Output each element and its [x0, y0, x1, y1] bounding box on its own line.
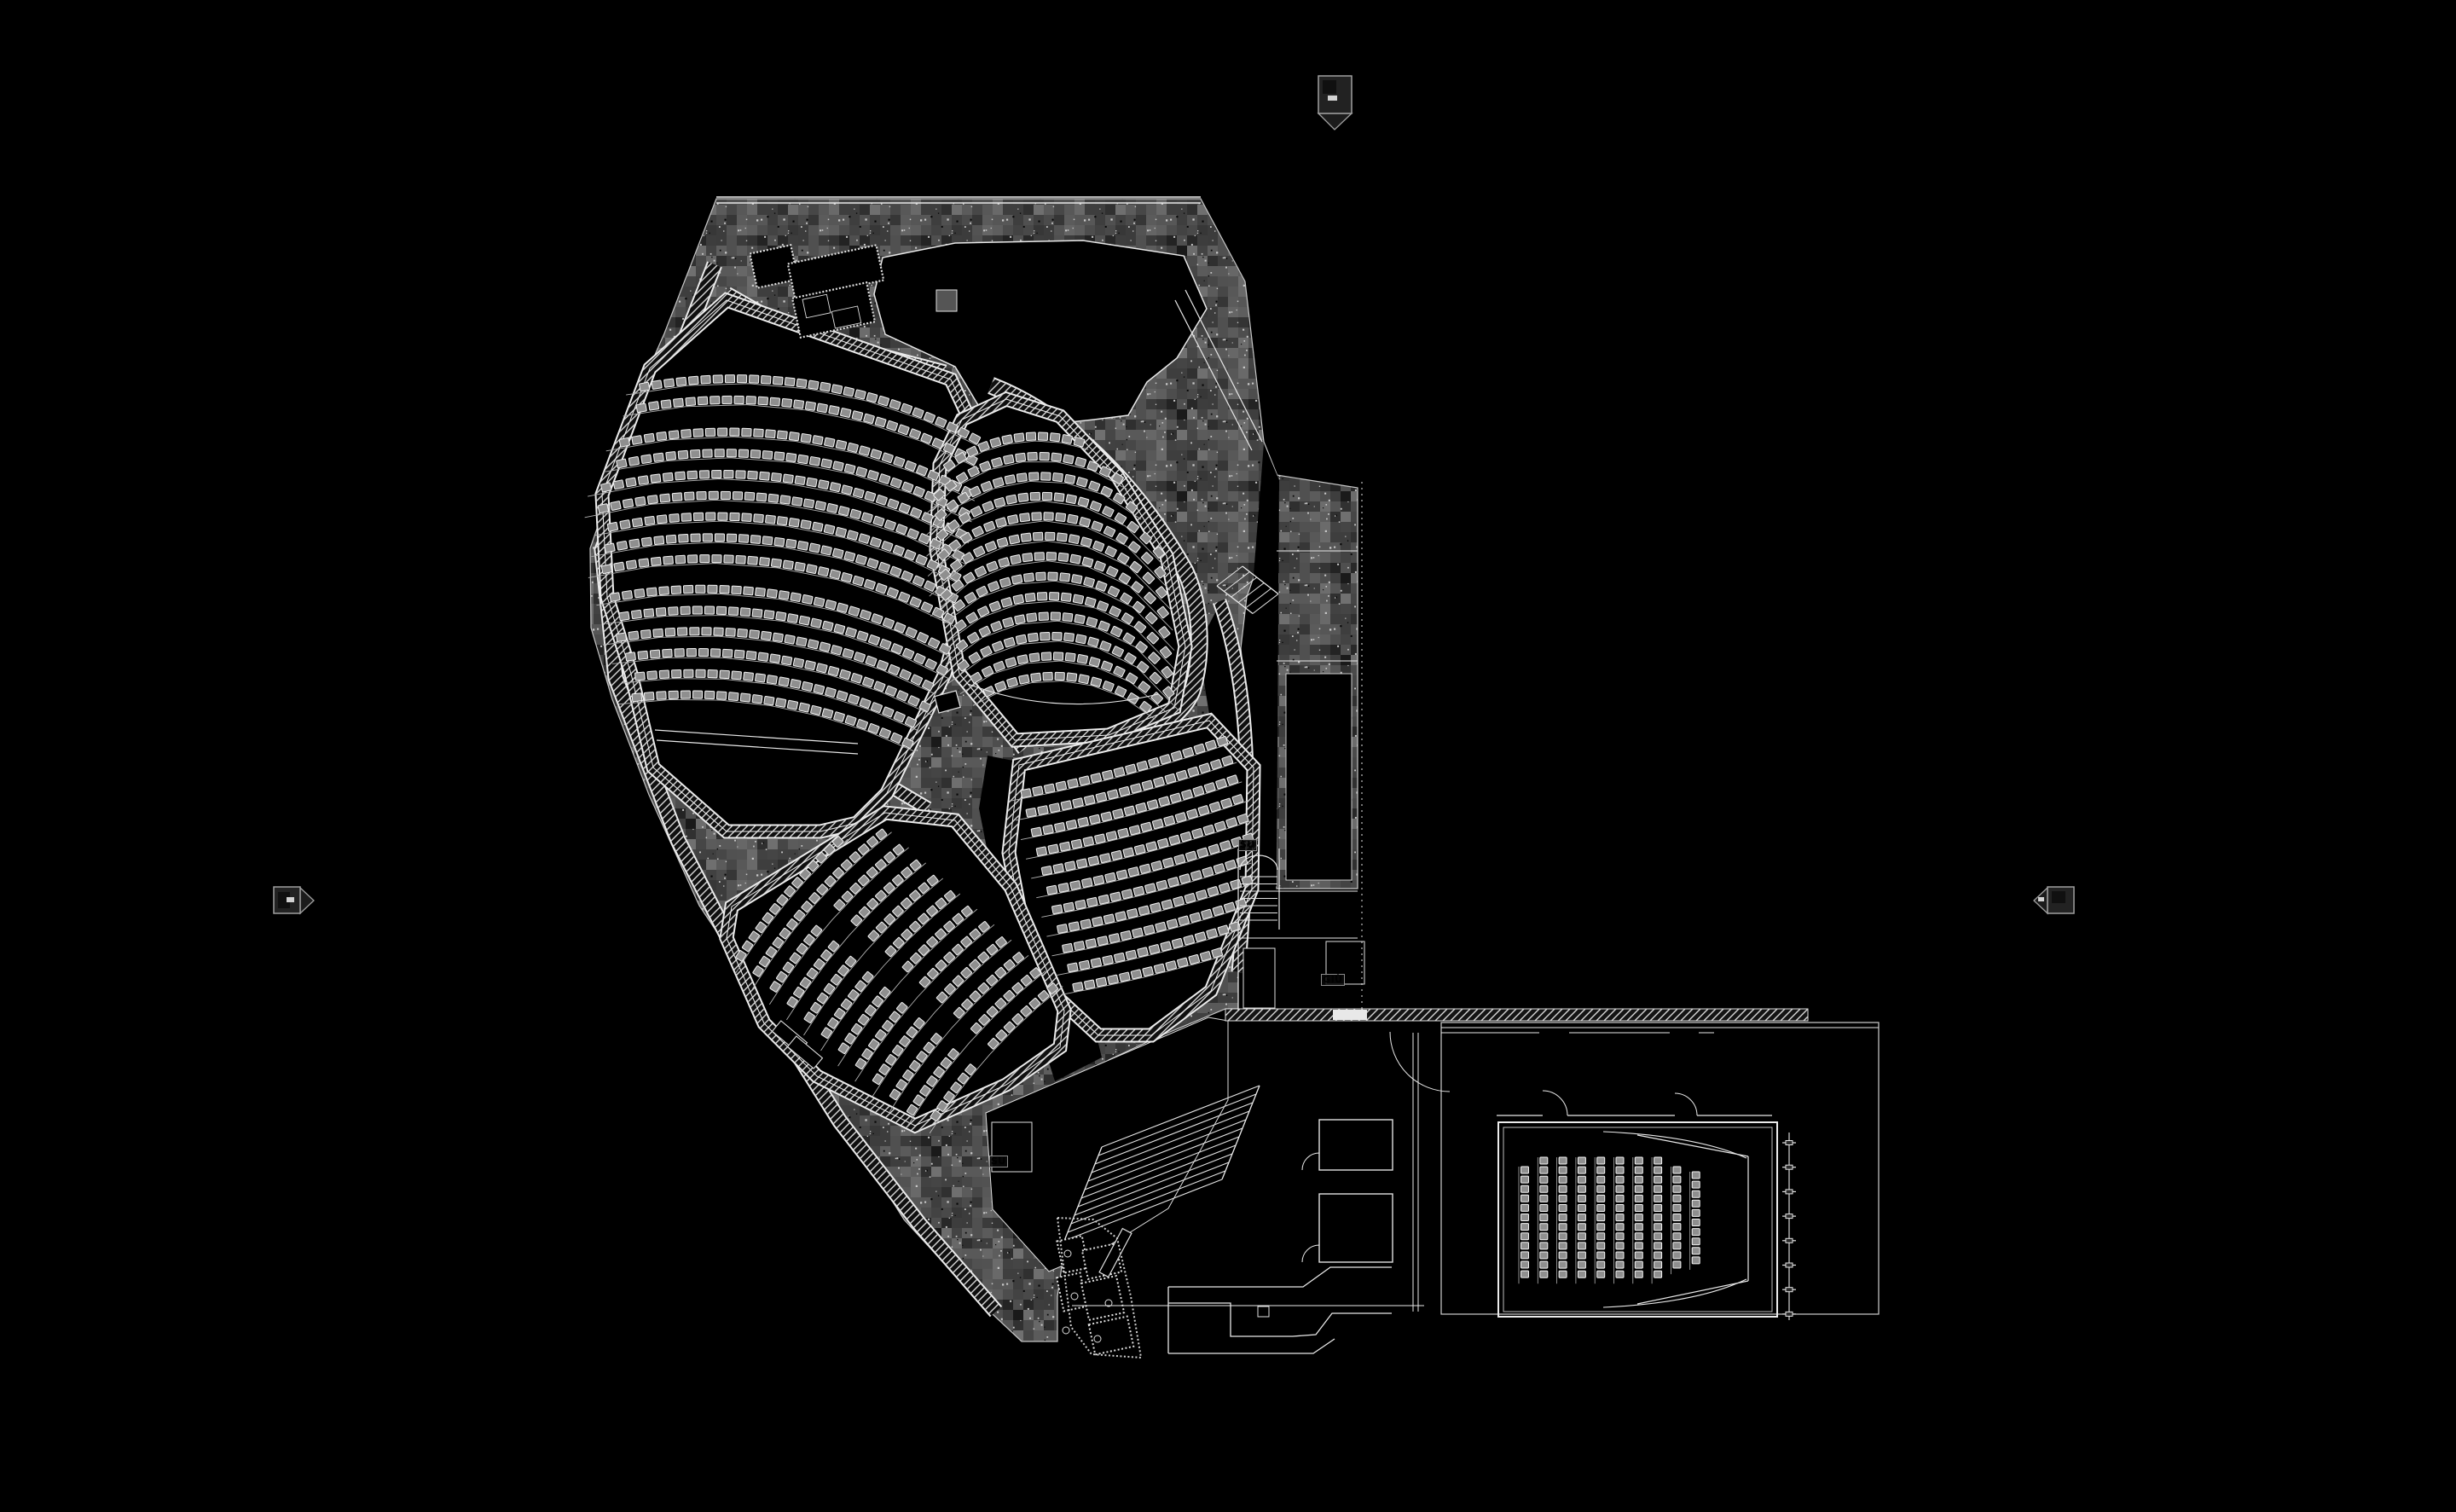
floor-plan-svg: [0, 0, 2456, 1512]
floor-plan-canvas: SU GIÙ SU: [0, 0, 2456, 1512]
section-marker-right: [2034, 887, 2074, 913]
section-marker-top: [1318, 76, 1352, 130]
section-marker-left: [274, 887, 314, 913]
stair-label-su-west: SU: [989, 1156, 1008, 1167]
stair-label-su-core: SU: [1238, 839, 1257, 851]
stair-label-giu-core: GIÙ: [1321, 974, 1345, 986]
